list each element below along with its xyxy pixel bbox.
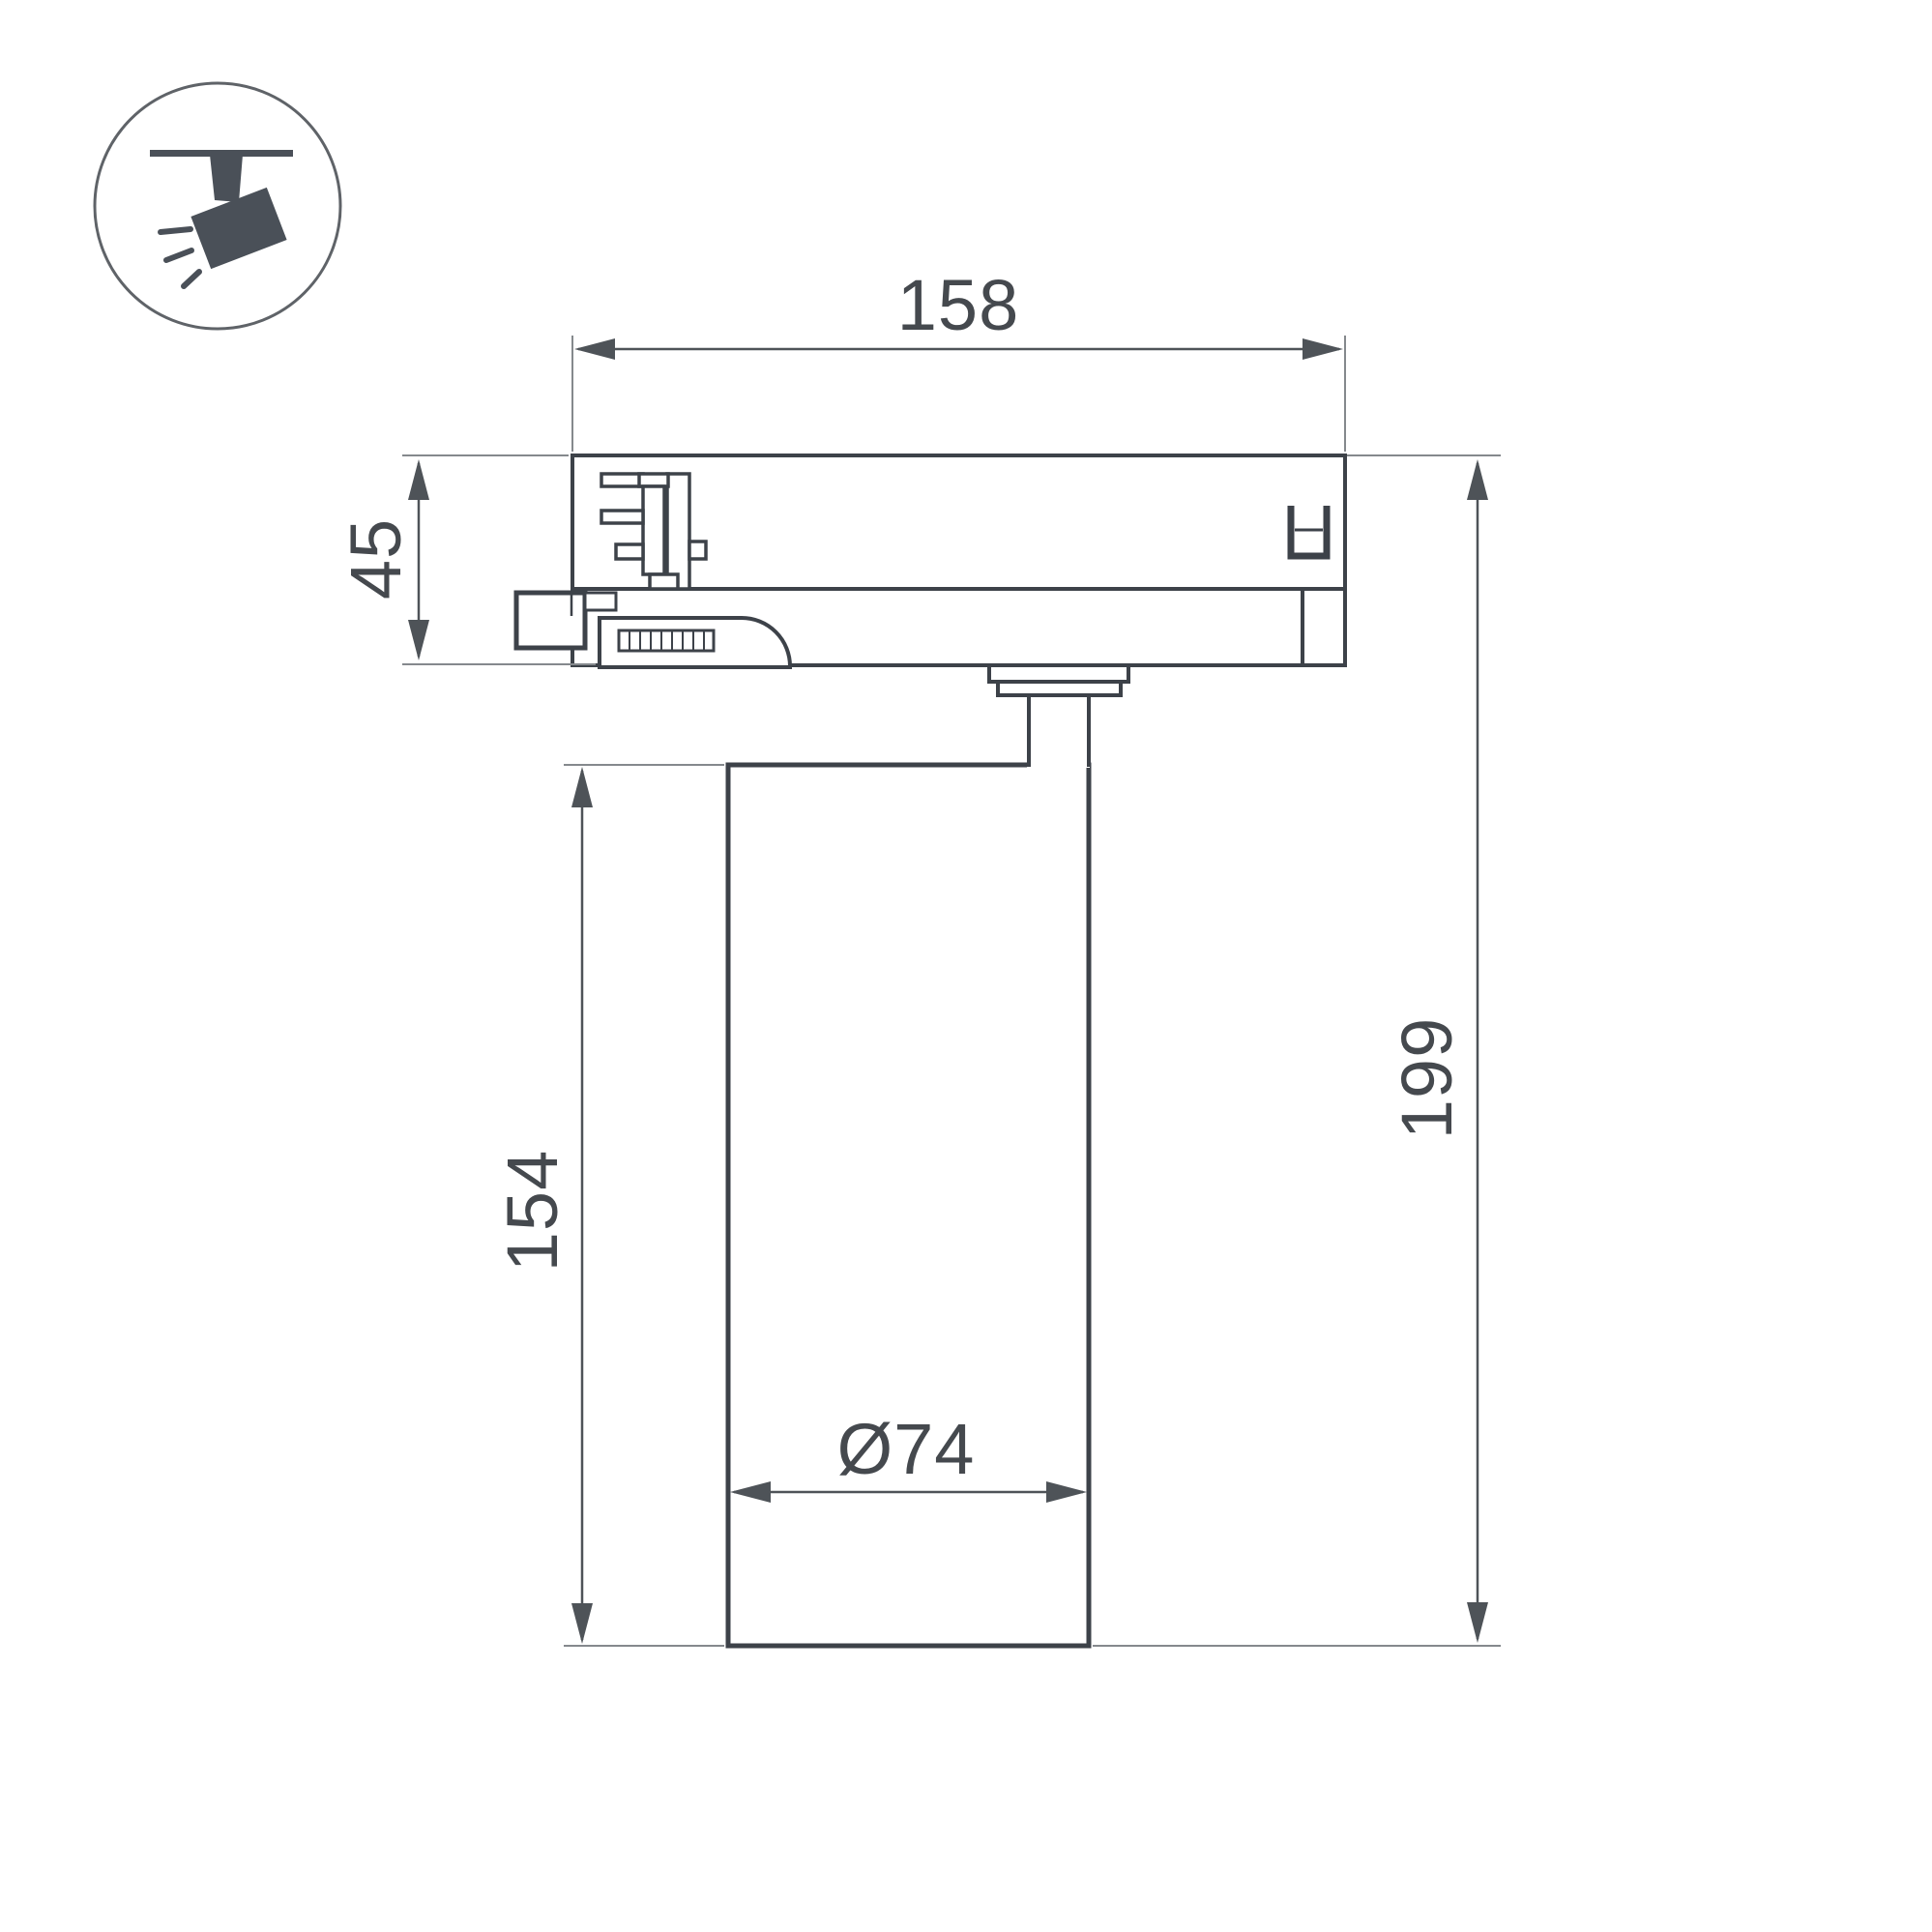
arrow-right-icon — [1303, 338, 1343, 360]
dim-track-width: 158 — [572, 265, 1345, 452]
dimension-drawing-page: 158 45 154 199 Ø74 — [0, 0, 1932, 1932]
contact-pin-right — [689, 542, 706, 559]
dim-body-height-label: 154 — [492, 1150, 572, 1272]
dim-adapter-height-label: 45 — [336, 518, 416, 600]
arrow-up-icon — [1467, 459, 1488, 500]
dim-track-width-label: 158 — [897, 265, 1019, 345]
contact-rod-foot — [650, 574, 678, 589]
contact-pin-top — [601, 474, 643, 486]
arrow-down-icon — [1467, 1602, 1488, 1643]
icon-circle — [95, 83, 340, 329]
contact-plate — [667, 474, 689, 589]
adapter-side-block — [516, 593, 585, 648]
contact-pin-middle — [601, 511, 643, 523]
mount-stem — [1027, 693, 1090, 768]
latch-grip — [619, 630, 714, 651]
drawing-canvas: 158 45 154 199 Ø74 — [0, 0, 1932, 1932]
arrow-down-icon — [408, 620, 429, 660]
mount-flange-lower — [998, 682, 1121, 695]
arrow-down-icon — [571, 1603, 593, 1644]
track-spotlight-icon — [95, 83, 340, 329]
arrow-left-icon — [574, 338, 615, 360]
mount-flange-upper — [989, 665, 1128, 682]
lamp-body — [728, 765, 1089, 1646]
contact-pin-bottom — [616, 544, 643, 559]
side-block-notch — [585, 593, 616, 610]
arrow-up-icon — [571, 767, 593, 807]
dim-body-diameter-label: Ø74 — [837, 1409, 976, 1489]
arrow-up-icon — [408, 459, 429, 500]
spotlight-stem — [210, 155, 243, 202]
dim-total-height-label: 199 — [1387, 1017, 1467, 1139]
contact-rod — [643, 486, 664, 574]
dim-body-height: 154 — [492, 765, 724, 1646]
contact-rod-cap — [639, 474, 668, 486]
